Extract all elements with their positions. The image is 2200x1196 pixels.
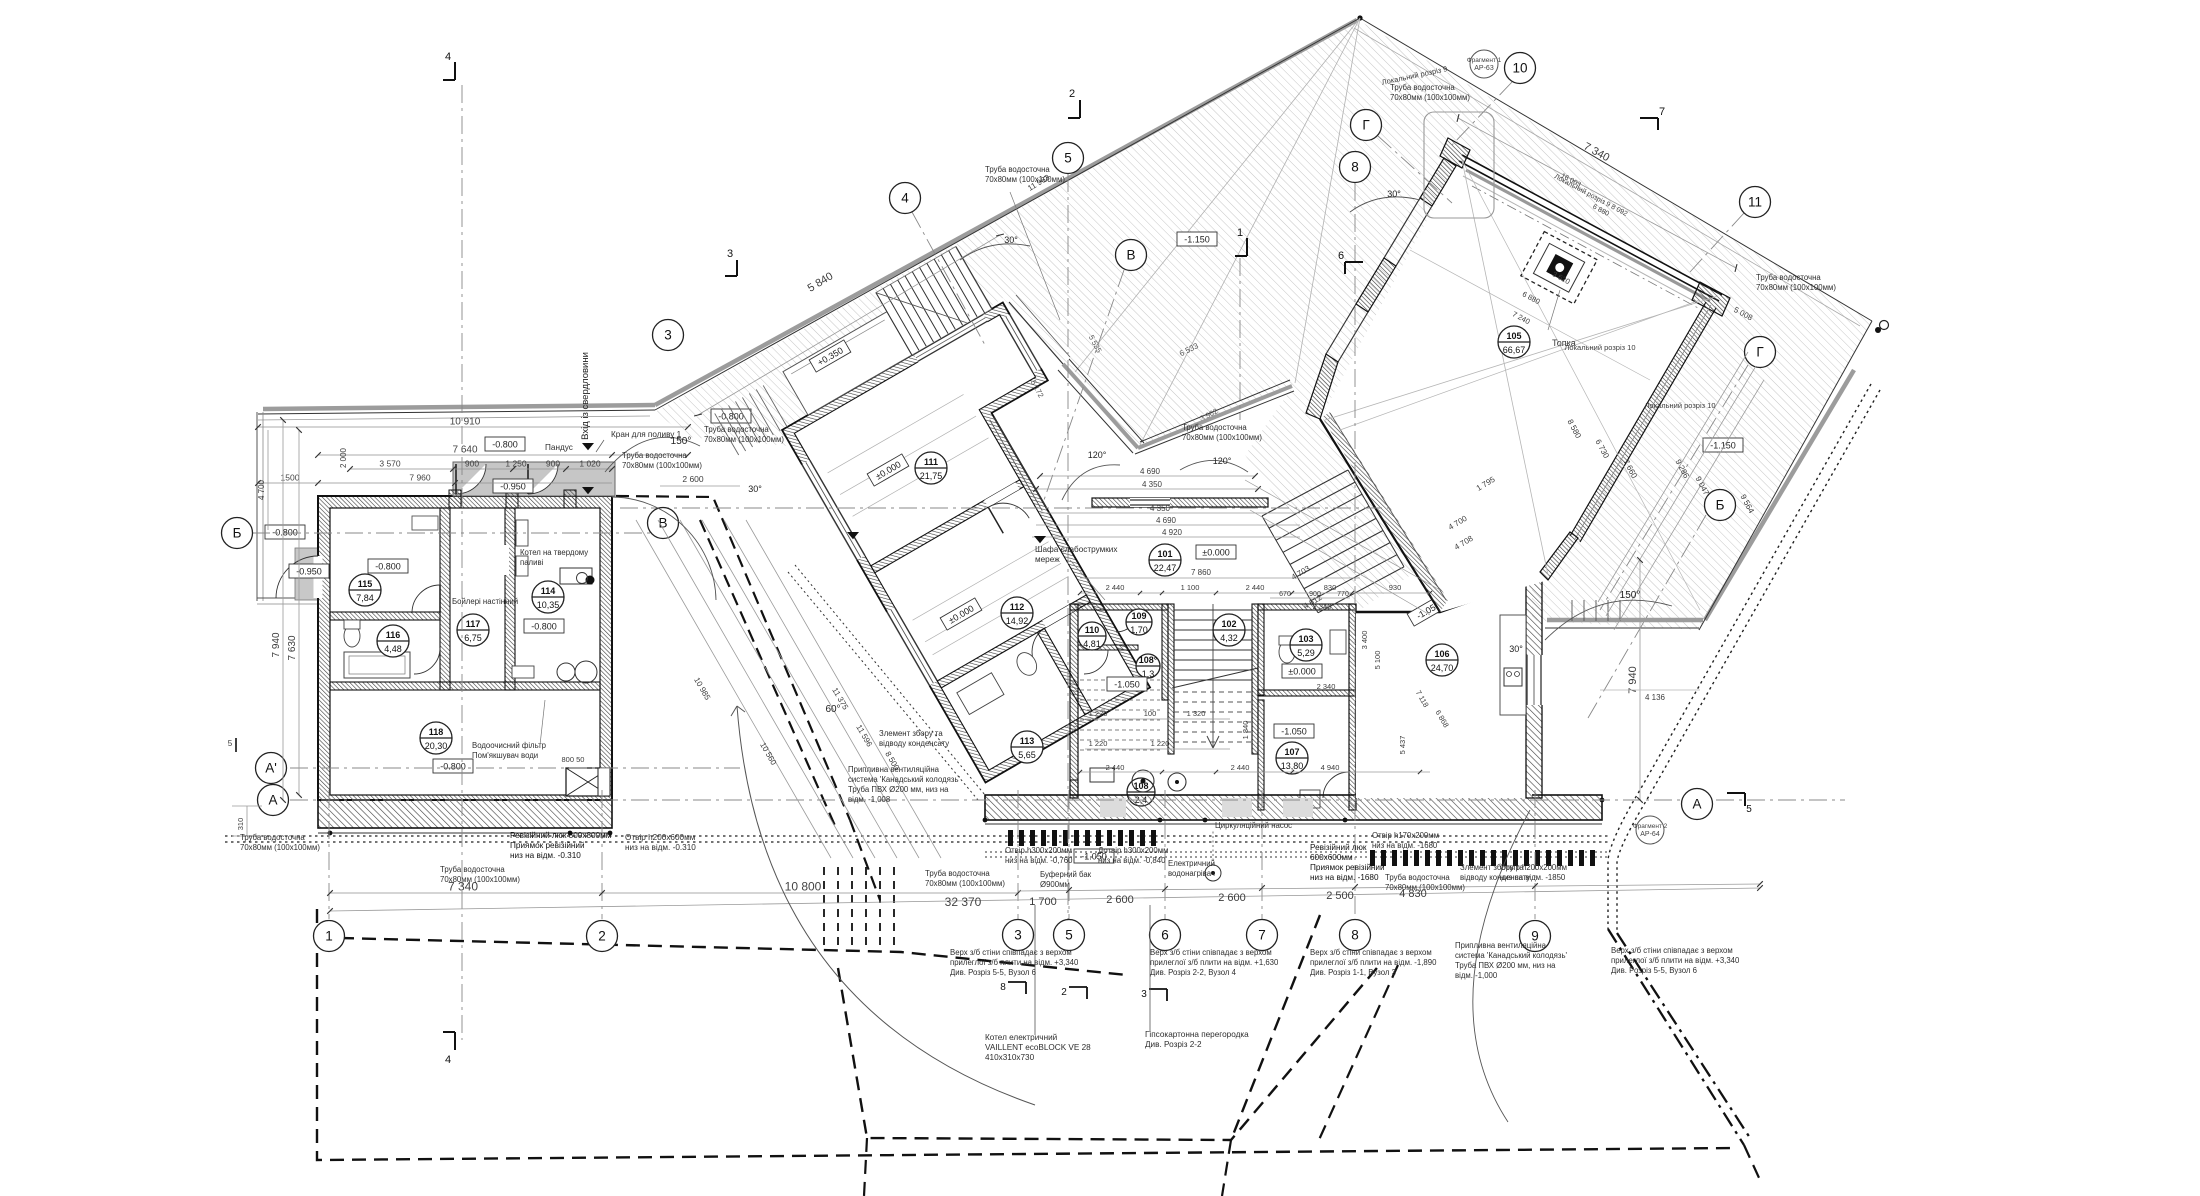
svg-text:10: 10 (1512, 61, 1527, 76)
svg-text:Ревізійний люк 800х800мм: Ревізійний люк 800х800мм (510, 831, 612, 840)
svg-text:відм. -1,000: відм. -1,000 (1455, 971, 1498, 980)
svg-text:АР-63: АР-63 (1474, 65, 1494, 72)
svg-text:-1.150: -1.150 (1184, 235, 1210, 245)
svg-text:103: 103 (1298, 634, 1313, 644)
svg-text:14,92: 14,92 (1006, 616, 1029, 626)
svg-text:70х80мм (100х100мм): 70х80мм (100х100мм) (1756, 283, 1836, 292)
svg-text:1 840: 1 840 (1241, 721, 1250, 740)
svg-text:Див. Розріз 5-5, Вузол 6: Див. Розріз 5-5, Вузол 6 (950, 968, 1036, 977)
svg-text:1 220: 1 220 (1089, 709, 1108, 718)
svg-text:21,75: 21,75 (920, 471, 943, 481)
svg-text:113: 113 (1020, 736, 1035, 746)
svg-text:4,81: 4,81 (1083, 639, 1101, 649)
svg-text:Припливна вентиляційна: Припливна вентиляційна (1455, 941, 1547, 950)
svg-text:1 020: 1 020 (579, 459, 601, 469)
svg-text:118: 118 (429, 727, 444, 737)
svg-text:прилеглої з/б плити на відм. +: прилеглої з/б плити на відм. +3,340 (1611, 956, 1740, 965)
svg-text:30°: 30° (748, 484, 762, 494)
svg-text:низ на відм. -0,840: низ на відм. -0,840 (1098, 856, 1166, 865)
svg-text:Локальний розріз 10: Локальний розріз 10 (1645, 401, 1716, 410)
svg-text:116: 116 (386, 630, 401, 640)
svg-text:4 690: 4 690 (1156, 516, 1177, 525)
svg-text:-0.800: -0.800 (375, 562, 401, 572)
svg-text:410х310х730: 410х310х730 (985, 1053, 1035, 1062)
svg-text:Труба водосточна: Труба водосточна (925, 869, 990, 878)
svg-text:70х80мм (100х100мм): 70х80мм (100х100мм) (1390, 93, 1470, 102)
svg-text:3: 3 (664, 328, 672, 343)
svg-text:±0.000: ±0.000 (1202, 548, 1229, 558)
svg-text:7 640: 7 640 (452, 445, 477, 456)
svg-text:7 630: 7 630 (287, 635, 298, 660)
svg-text:1 250: 1 250 (505, 459, 527, 469)
svg-text:Приямок ревізійний: Приямок ревізійний (1310, 863, 1385, 872)
svg-text:Труба водосточна: Труба водосточна (1182, 423, 1247, 432)
svg-text:24,70: 24,70 (1431, 663, 1454, 673)
svg-text:150°: 150° (1620, 590, 1641, 601)
svg-text:7: 7 (1659, 106, 1665, 118)
svg-text:відм. -1,008: відм. -1,008 (848, 795, 890, 804)
svg-text:13,80: 13,80 (1281, 761, 1304, 771)
svg-text:3: 3 (1014, 928, 1022, 943)
svg-text:4 940: 4 940 (1321, 763, 1340, 772)
svg-text:Пандус: Пандус (545, 443, 573, 452)
svg-text:Труба водосточна: Труба водосточна (440, 865, 505, 874)
svg-text:32 370: 32 370 (945, 895, 982, 909)
svg-text:800 50: 800 50 (562, 755, 585, 764)
svg-text:10 800: 10 800 (785, 880, 822, 894)
svg-text:Локальний розріз 10: Локальний розріз 10 (1565, 343, 1636, 352)
svg-text:Труба ПВХ Ø200 мм, низ на: Труба ПВХ Ø200 мм, низ на (1455, 961, 1556, 970)
svg-text:102: 102 (1221, 619, 1236, 629)
svg-text:2 500: 2 500 (1326, 890, 1354, 902)
svg-text:2 440: 2 440 (1231, 763, 1250, 772)
svg-text:105: 105 (1506, 331, 1521, 341)
svg-text:4: 4 (901, 191, 909, 206)
svg-text:117: 117 (466, 619, 481, 629)
svg-text:3: 3 (727, 248, 733, 260)
svg-text:108°: 108° (1139, 655, 1158, 665)
svg-text:900: 900 (546, 459, 560, 469)
svg-text:Котел електричний: Котел електричний (985, 1033, 1057, 1042)
svg-text:Ø900мм: Ø900мм (1040, 880, 1070, 889)
svg-text:6: 6 (1338, 250, 1344, 262)
svg-text:4 700: 4 700 (257, 479, 266, 500)
svg-text:-0.800: -0.800 (718, 412, 744, 422)
svg-text:відводу конденсату: відводу конденсату (1460, 873, 1530, 882)
svg-text:106: 106 (1434, 649, 1449, 659)
svg-text:4 350: 4 350 (1142, 480, 1163, 489)
svg-text:низ на відм. -0,760: низ на відм. -0,760 (1005, 856, 1073, 865)
svg-text:11: 11 (1748, 195, 1762, 210)
svg-text:1 320: 1 320 (1187, 709, 1206, 718)
svg-text:Злемент збору та: Злемент збору та (1460, 863, 1524, 872)
svg-text:107: 107 (1284, 747, 1299, 757)
svg-text:7 940: 7 940 (271, 632, 282, 657)
svg-text:120°: 120° (1088, 450, 1107, 460)
svg-text:Електричний: Електричний (1168, 859, 1215, 868)
svg-text:Фрагмент 2: Фрагмент 2 (1633, 823, 1668, 830)
svg-text:114: 114 (541, 586, 556, 596)
svg-text:-1.150: -1.150 (1710, 441, 1736, 451)
svg-text:Верх з/б стіни співпадає з вер: Верх з/б стіни співпадає з верхом (1150, 948, 1272, 957)
svg-text:Приямок ревізійний: Приямок ревізійний (510, 841, 585, 850)
svg-text:Труба водосточна: Труба водосточна (985, 165, 1050, 174)
svg-text:900: 900 (1309, 591, 1321, 598)
svg-text:2 440: 2 440 (1106, 763, 1125, 772)
svg-text:7 960: 7 960 (409, 473, 431, 483)
svg-text:АР-64: АР-64 (1640, 831, 1660, 838)
svg-text:70х80мм (100х100мм): 70х80мм (100х100мм) (704, 435, 784, 444)
svg-text:30°: 30° (1004, 235, 1018, 245)
svg-text:109: 109 (1131, 611, 1146, 621)
svg-text:Див. Розріз 2-2: Див. Розріз 2-2 (1145, 1040, 1202, 1049)
svg-text:прилеглої з/б плити на відм. +: прилеглої з/б плити на відм. +1,630 (1150, 958, 1279, 967)
svg-text:4 136: 4 136 (1645, 693, 1666, 702)
svg-text:-0.800: -0.800 (492, 440, 518, 450)
svg-text:101: 101 (1157, 549, 1172, 559)
svg-text:низ на відм. -1680: низ на відм. -1680 (1372, 841, 1438, 850)
svg-text:770: 770 (1337, 591, 1349, 598)
svg-text:70х80мм (100х100мм): 70х80мм (100х100мм) (1385, 883, 1465, 892)
svg-text:паливі: паливі (520, 558, 544, 567)
svg-text:5 437: 5 437 (1398, 736, 1407, 755)
svg-text:2 440: 2 440 (1106, 583, 1125, 592)
svg-text:70х80мм (100х100мм): 70х80мм (100х100мм) (925, 879, 1005, 888)
svg-text:Труба водосточна: Труба водосточна (1385, 873, 1450, 882)
svg-text:70х80мм (100х100мм): 70х80мм (100х100мм) (440, 875, 520, 884)
svg-text:1: 1 (325, 929, 333, 944)
svg-text:низ на відм. -0.310: низ на відм. -0.310 (510, 851, 581, 860)
svg-text:Труба водосточна: Труба водосточна (622, 451, 687, 460)
svg-text:Котел на твердому: Котел на твердому (520, 548, 588, 557)
svg-text:Г: Г (1362, 118, 1370, 133)
svg-text:3 400: 3 400 (1360, 631, 1369, 650)
svg-text:30°: 30° (1387, 189, 1401, 199)
svg-text:4: 4 (445, 1054, 451, 1066)
svg-text:1,70: 1,70 (1130, 625, 1148, 635)
svg-text:7 940: 7 940 (1627, 666, 1639, 694)
svg-text:Кран для поливу 1: Кран для поливу 1 (611, 430, 682, 439)
svg-text:600х600мм: 600х600мм (1310, 853, 1353, 862)
svg-text:VAILLENT ecoBLOCK VE 28: VAILLENT ecoBLOCK VE 28 (985, 1043, 1091, 1052)
svg-text:4 690: 4 690 (1140, 467, 1161, 476)
svg-text:Циркуляційний насос: Циркуляційний насос (1215, 821, 1292, 830)
svg-text:120°: 120° (1213, 456, 1232, 466)
svg-text:Отвір h200х600мм: Отвір h200х600мм (625, 833, 696, 842)
svg-text:900: 900 (465, 459, 479, 469)
svg-text:7: 7 (1258, 928, 1266, 943)
svg-text:5,29: 5,29 (1297, 648, 1315, 658)
svg-text:7,84: 7,84 (356, 593, 374, 603)
svg-text:2: 2 (1069, 88, 1075, 100)
svg-text:А: А (268, 793, 277, 808)
svg-text:830: 830 (1324, 583, 1337, 592)
svg-text:1 700: 1 700 (1029, 896, 1057, 908)
svg-text:670: 670 (1279, 591, 1291, 598)
svg-text:70х80мм (100х100мм): 70х80мм (100х100мм) (240, 843, 320, 852)
svg-text:8: 8 (1351, 160, 1359, 175)
svg-text:100: 100 (1144, 709, 1157, 718)
svg-text:-0.800: -0.800 (272, 528, 298, 538)
svg-text:Ревізійний люк: Ревізійний люк (1310, 843, 1367, 852)
svg-text:-0.950: -0.950 (296, 567, 322, 577)
svg-text:70х80мм (100х100мм): 70х80мм (100х100мм) (1182, 433, 1262, 442)
svg-text:Б: Б (233, 526, 242, 541)
svg-text:Див. Розріз 1-1, Вузол 3: Див. Розріз 1-1, Вузол 3 (1310, 968, 1396, 977)
svg-text:70х80мм (100х100мм): 70х80мм (100х100мм) (985, 175, 1065, 184)
svg-text:Труба водосточна: Труба водосточна (1390, 83, 1455, 92)
svg-text:А': А' (265, 761, 277, 776)
svg-text:Див. Розріз 5-5, Вузол 6: Див. Розріз 5-5, Вузол 6 (1611, 966, 1697, 975)
svg-text:В: В (1126, 248, 1135, 263)
svg-text:6: 6 (1161, 928, 1169, 943)
svg-text:66,67: 66,67 (1503, 345, 1526, 355)
svg-text:низ на відм. -0.310: низ на відм. -0.310 (625, 843, 696, 852)
svg-text:4,48: 4,48 (384, 644, 402, 654)
svg-text:30°: 30° (1509, 644, 1523, 654)
svg-text:2 340: 2 340 (1313, 602, 1332, 611)
svg-text:система 'Канадський колодязь': система 'Канадський колодязь' (1455, 951, 1568, 960)
svg-text:111: 111 (924, 457, 938, 467)
svg-text:1: 1 (1237, 227, 1243, 239)
svg-text:5,65: 5,65 (1018, 750, 1036, 760)
svg-text:Труба водосточна: Труба водосточна (1756, 273, 1821, 282)
svg-text:2 600: 2 600 (1218, 892, 1246, 904)
svg-text:Верх з/б стіни співпадає з вер: Верх з/б стіни співпадає з верхом (1611, 946, 1733, 955)
svg-text:Дотвір h300х200мм: Дотвір h300х200мм (1098, 846, 1168, 855)
svg-text:310: 310 (236, 818, 245, 831)
svg-text:Злемент збору та: Злемент збору та (879, 729, 943, 738)
svg-text:112: 112 (1010, 602, 1025, 612)
svg-text:водонагрівач: водонагрівач (1168, 869, 1215, 878)
svg-text:10,35: 10,35 (537, 600, 560, 610)
svg-text:8: 8 (1000, 982, 1006, 993)
svg-text:1500: 1500 (281, 473, 300, 483)
svg-text:Вхід із свердловини: Вхід із свердловини (580, 352, 591, 440)
svg-text:система 'Канадський колодязь': система 'Канадський колодязь' (848, 775, 961, 784)
svg-text:2 000: 2 000 (339, 447, 348, 468)
svg-text:2 440: 2 440 (1246, 583, 1265, 592)
svg-text:4 350: 4 350 (1150, 504, 1171, 513)
svg-text:відводу конденсату: відводу конденсату (879, 739, 949, 748)
svg-text:прилеглої з/б плити на відм. -: прилеглої з/б плити на відм. -1,890 (1310, 958, 1437, 967)
svg-text:5: 5 (1746, 804, 1752, 815)
svg-text:Г: Г (1756, 345, 1764, 360)
svg-text:3: 3 (1141, 989, 1147, 1000)
svg-text:±0.000: ±0.000 (1288, 667, 1315, 677)
svg-text:1 220: 1 220 (1089, 739, 1108, 748)
svg-text:мереж: мереж (1035, 555, 1060, 564)
svg-text:2 600: 2 600 (682, 474, 704, 484)
svg-text:20,30: 20,30 (425, 741, 448, 751)
svg-text:3 570: 3 570 (379, 459, 401, 469)
svg-text:-1.050: -1.050 (1281, 727, 1307, 737)
svg-text:110: 110 (1085, 625, 1100, 635)
svg-text:10 910: 10 910 (450, 417, 481, 428)
svg-text:1 100: 1 100 (1181, 583, 1200, 592)
svg-text:2: 2 (598, 929, 606, 944)
svg-text:Верх з/б стіни співпадає з вер: Верх з/б стіни співпадає з верхом (1310, 948, 1432, 957)
svg-text:115: 115 (358, 579, 373, 589)
svg-text:-1.050: -1.050 (1114, 680, 1140, 690)
svg-text:Буферний бак: Буферний бак (1040, 870, 1092, 879)
svg-text:5: 5 (228, 739, 233, 748)
svg-text:прилеглої з/б плити на відм. +: прилеглої з/б плити на відм. +3,340 (950, 958, 1079, 967)
svg-text:Бойлері настінний: Бойлері настінний (452, 597, 518, 606)
svg-text:5 100: 5 100 (1373, 651, 1382, 670)
svg-text:7 860: 7 860 (1191, 568, 1212, 577)
svg-text:4,32: 4,32 (1220, 633, 1238, 643)
svg-text:Труба водосточна: Труба водосточна (240, 833, 305, 842)
svg-text:-0.800: -0.800 (531, 622, 557, 632)
svg-text:Отвір h170х200мм: Отвір h170х200мм (1372, 831, 1439, 840)
svg-text:Труба ПВХ Ø200 мм, низ на: Труба ПВХ Ø200 мм, низ на (848, 785, 949, 794)
svg-text:70х80мм (100х100мм): 70х80мм (100х100мм) (622, 461, 702, 470)
svg-text:Шафа слабострумких: Шафа слабострумких (1035, 545, 1117, 554)
svg-text:Пом'якшувач води: Пом'якшувач води (472, 751, 538, 760)
svg-text:Отвір h300х200мм: Отвір h300х200мм (1005, 846, 1072, 855)
svg-text:А: А (1692, 797, 1701, 812)
svg-text:930: 930 (1389, 583, 1402, 592)
svg-text:Див. Розріз 2-2, Вузол 4: Див. Розріз 2-2, Вузол 4 (1150, 968, 1237, 977)
svg-text:Гіпсокартонна перегородка: Гіпсокартонна перегородка (1145, 1030, 1249, 1039)
svg-text:1 220: 1 220 (1151, 739, 1170, 748)
svg-text:Водоочисний фільтр: Водоочисний фільтр (472, 741, 547, 750)
svg-text:2 600: 2 600 (1106, 894, 1134, 906)
svg-text:4: 4 (445, 51, 451, 63)
svg-text:8: 8 (1351, 928, 1359, 943)
svg-text:Фрагмент 1: Фрагмент 1 (1467, 57, 1502, 64)
svg-text:Припливна вентиляційна: Припливна вентиляційна (848, 765, 940, 774)
svg-text:2: 2 (1061, 987, 1067, 998)
svg-text:Б: Б (1716, 498, 1725, 513)
svg-text:Верх з/б стіни співпадає з вер: Верх з/б стіни співпадає з верхом (950, 948, 1072, 957)
svg-text:6,75: 6,75 (464, 633, 482, 643)
svg-text:низ на відм. -1680: низ на відм. -1680 (1310, 873, 1379, 882)
svg-text:22,47: 22,47 (1154, 563, 1177, 573)
svg-text:5: 5 (1065, 928, 1073, 943)
svg-text:5: 5 (1064, 151, 1072, 166)
svg-text:4 920: 4 920 (1162, 528, 1183, 537)
svg-text:2 340: 2 340 (1317, 682, 1336, 691)
svg-text:Труба водосточна: Труба водосточна (704, 425, 769, 434)
svg-text:60°: 60° (825, 704, 840, 715)
